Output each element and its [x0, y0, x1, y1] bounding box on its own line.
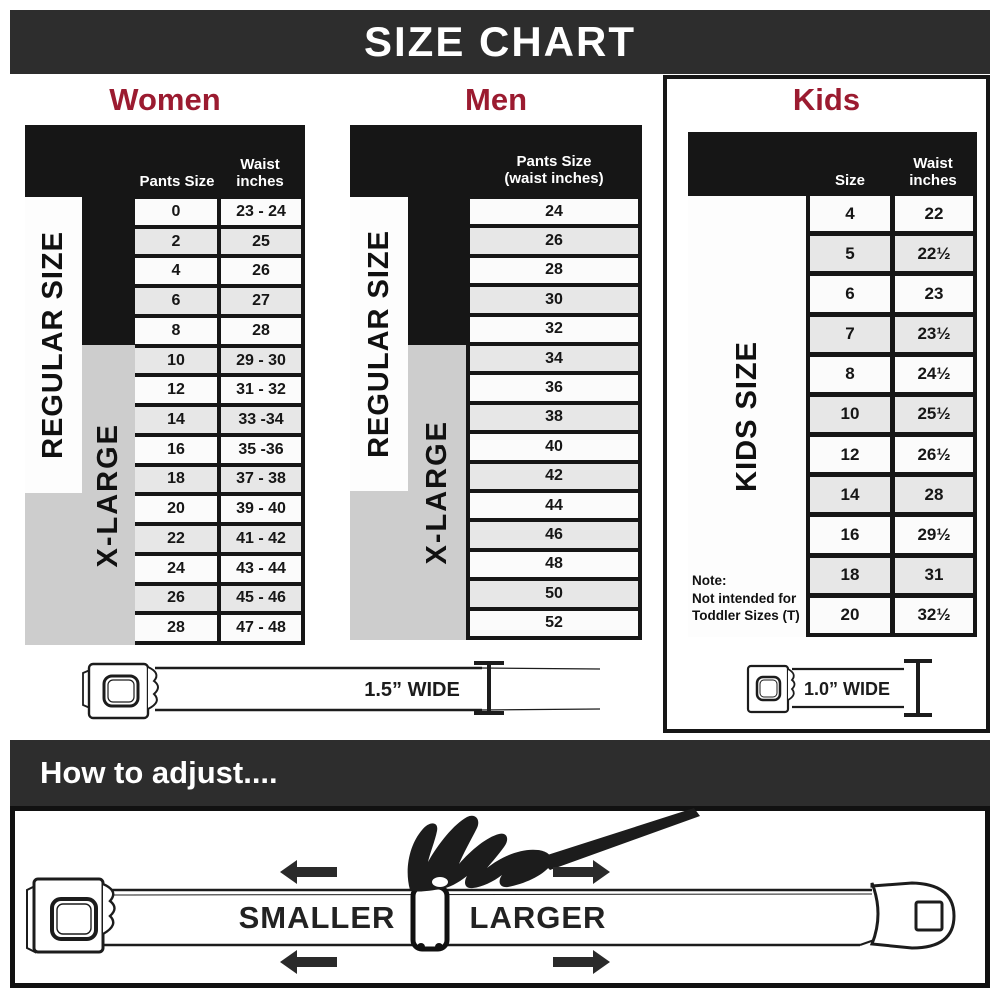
kids-waist-cell: 23½	[895, 317, 973, 352]
men-size-cell: 46	[470, 522, 638, 547]
women-size-cell: 26	[135, 586, 217, 612]
kids-size-cell: 20	[810, 598, 890, 633]
women-xlarge-label: X-LARGE	[92, 423, 125, 568]
men-size-cell: 50	[470, 581, 638, 606]
women-waist-cell: 33 -34	[221, 407, 301, 433]
men-size-cell: 42	[470, 464, 638, 489]
kids-size-cell: 16	[810, 517, 890, 552]
kids-size-cell: 12	[810, 437, 890, 472]
kids-size-cell: 10	[810, 397, 890, 432]
women-size-cell: 28	[135, 615, 217, 641]
kids-waist-cell: 29½	[895, 517, 973, 552]
women-size-cell: 2	[135, 229, 217, 255]
men-size-cell: 40	[470, 434, 638, 459]
women-size-cell: 8	[135, 318, 217, 344]
kids-size-cell: 18	[810, 558, 890, 593]
men-regular-size-block: REGULAR SIZE	[350, 197, 408, 491]
women-waist-cell: 25	[221, 229, 301, 255]
kids-size-cell: 8	[810, 357, 890, 392]
kids-col2-header: Waist inches	[893, 155, 973, 190]
women-rows-grid: 023 - 24 225 426 627 828 1029 - 30 1231 …	[135, 199, 301, 641]
kids-size-label: KIDS SIZE	[731, 341, 764, 492]
men-xlarge-label: X-LARGE	[421, 420, 454, 565]
kids-waist-cell: 26½	[895, 437, 973, 472]
width-measure-icon	[474, 663, 504, 713]
smaller-label: SMALLER	[239, 900, 396, 935]
kids-size-cell: 4	[810, 196, 890, 231]
women-size-cell: 4	[135, 258, 217, 284]
men-col-header: Pants Size (waist inches)	[470, 153, 638, 188]
width-measure-icon	[904, 661, 932, 715]
kids-col1-header: Size	[810, 172, 890, 189]
kids-size-table: Size Waist inches KIDS SIZE Note: Not in…	[688, 132, 977, 637]
men-size-cell: 52	[470, 611, 638, 636]
men-size-cell: 32	[470, 317, 638, 342]
kids-size-cell: 7	[810, 317, 890, 352]
women-waist-cell: 45 - 46	[221, 586, 301, 612]
kids-size-cell: 5	[810, 236, 890, 271]
women-size-table: Pants Size Waist inches REGULAR SIZE X-L…	[25, 125, 305, 645]
men-size-cell: 44	[470, 493, 638, 518]
seatbelt-buckle-icon	[83, 664, 158, 718]
men-rows-grid: 24 26 28 30 32 34 36 38 40 42 44 46 48 5…	[470, 199, 638, 636]
women-waist-cell: 47 - 48	[221, 615, 301, 641]
kids-size-block: KIDS SIZE	[688, 196, 806, 637]
size-chart-page: SIZE CHART Women Men Kids Pants Size Wai…	[0, 0, 1000, 996]
men-size-cell: 28	[470, 258, 638, 283]
kids-size-cell: 6	[810, 276, 890, 311]
title-band: SIZE CHART	[10, 10, 990, 74]
adult-belt-width-label: 1.5” WIDE	[364, 679, 460, 701]
men-size-cell: 26	[470, 228, 638, 253]
how-to-adjust-band: How to adjust....	[10, 740, 990, 806]
women-size-cell: 16	[135, 437, 217, 463]
women-col2-header: Waist inches	[219, 156, 301, 191]
women-waist-cell: 43 - 44	[221, 556, 301, 582]
kids-rows-grid: 422 522½ 623 723½ 824½ 1025½ 1226½ 1428 …	[810, 196, 973, 633]
women-waist-cell: 28	[221, 318, 301, 344]
men-size-table: Pants Size (waist inches) REGULAR SIZE X…	[350, 125, 642, 640]
kids-size-cell: 14	[810, 477, 890, 512]
women-xlarge-label-area: X-LARGE	[82, 345, 135, 645]
men-size-cell: 48	[470, 552, 638, 577]
kids-note: Note: Not intended for Toddler Sizes (T)	[692, 572, 804, 625]
women-section-title: Women	[25, 82, 305, 118]
seatbelt-buckle-icon	[748, 666, 795, 712]
men-size-cell: 24	[470, 199, 638, 224]
women-waist-cell: 29 - 30	[221, 348, 301, 374]
women-size-cell: 18	[135, 467, 217, 493]
women-col1-header: Pants Size	[135, 173, 219, 190]
women-size-cell: 14	[135, 407, 217, 433]
kids-waist-cell: 24½	[895, 357, 973, 392]
men-size-cell: 30	[470, 287, 638, 312]
seatbelt-buckle-icon	[27, 879, 115, 952]
men-size-cell: 36	[470, 375, 638, 400]
page-title: SIZE CHART	[364, 18, 636, 66]
kids-waist-cell: 22½	[895, 236, 973, 271]
women-waist-cell: 41 - 42	[221, 526, 301, 552]
kids-waist-cell: 23	[895, 276, 973, 311]
women-size-cell: 6	[135, 288, 217, 314]
how-to-adjust-title: How to adjust....	[10, 755, 278, 791]
women-regular-size-label: REGULAR SIZE	[37, 231, 70, 459]
women-size-cell: 0	[135, 199, 217, 225]
kids-belt-width-label: 1.0” WIDE	[804, 679, 890, 699]
women-waist-cell: 37 - 38	[221, 467, 301, 493]
adjust-illustration: SMALLER LARGER	[10, 806, 990, 988]
women-waist-cell: 35 -36	[221, 437, 301, 463]
women-size-cell: 10	[135, 348, 217, 374]
kids-waist-cell: 31	[895, 558, 973, 593]
men-size-cell: 38	[470, 405, 638, 430]
women-regular-size-block: REGULAR SIZE	[25, 197, 82, 493]
kids-waist-cell: 25½	[895, 397, 973, 432]
women-waist-cell: 31 - 32	[221, 377, 301, 403]
men-regular-size-label: REGULAR SIZE	[363, 230, 396, 458]
kids-waist-cell: 28	[895, 477, 973, 512]
larger-label: LARGER	[470, 900, 607, 935]
women-waist-cell: 39 - 40	[221, 496, 301, 522]
women-waist-cell: 27	[221, 288, 301, 314]
women-waist-cell: 23 - 24	[221, 199, 301, 225]
belt-latch-plate-icon	[872, 883, 954, 948]
women-waist-cell: 26	[221, 258, 301, 284]
adult-belt-illustration: 1.5” WIDE	[60, 652, 620, 732]
kids-belt-illustration: 1.0” WIDE	[730, 652, 960, 732]
kids-waist-cell: 22	[895, 196, 973, 231]
women-size-cell: 24	[135, 556, 217, 582]
men-size-cell: 34	[470, 346, 638, 371]
men-section-title: Men	[350, 82, 642, 118]
women-size-cell: 12	[135, 377, 217, 403]
women-size-cell: 22	[135, 526, 217, 552]
men-xlarge-label-area: X-LARGE	[408, 345, 466, 640]
belt-adjuster-slider	[413, 887, 447, 951]
kids-waist-cell: 32½	[895, 598, 973, 633]
women-size-cell: 20	[135, 496, 217, 522]
